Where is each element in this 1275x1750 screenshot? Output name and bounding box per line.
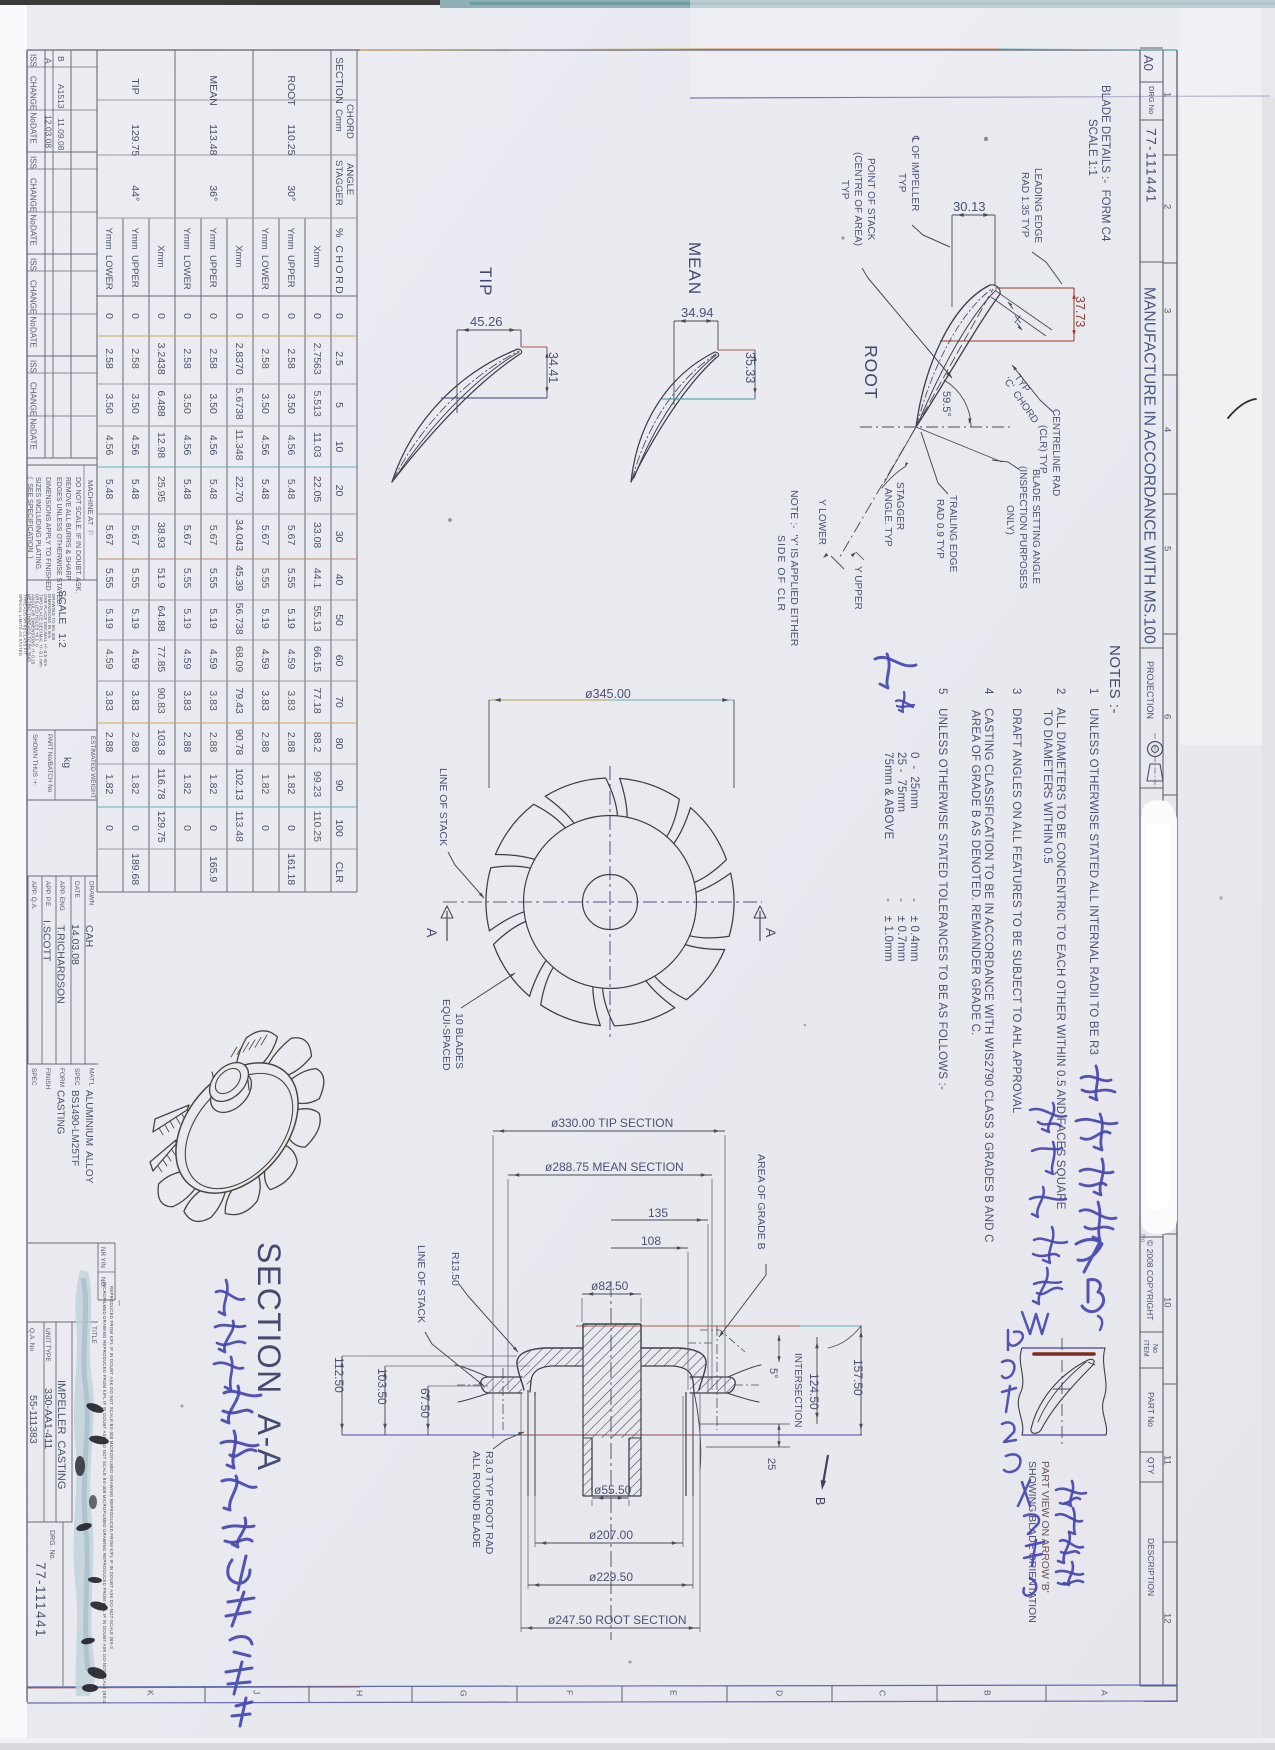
svg-text:A0: A0	[1141, 55, 1156, 71]
svg-text:4.59: 4.59	[259, 649, 271, 670]
svg-text:0: 0	[103, 825, 115, 831]
svg-text:Ymm LOWER: Ymm LOWER	[259, 228, 270, 290]
svg-text:DATE: DATE	[29, 123, 38, 144]
svg-text:MANUFACTURE IN ACCORDANCE WITH: MANUFACTURE IN ACCORDANCE WITH MS.100	[1141, 287, 1158, 644]
svg-text:2.58: 2.58	[207, 348, 219, 369]
svg-text:2.88: 2.88	[259, 732, 271, 753]
svg-text:CENTRELINE RAD: CENTRELINE RAD	[1050, 409, 1061, 496]
svg-text:CHANGE No: CHANGE No	[29, 280, 38, 327]
svg-text:0: 0	[207, 313, 219, 319]
svg-text:T.RICHARDSON: T.RICHARDSON	[55, 925, 67, 1004]
svg-text:129.75: 129.75	[129, 124, 141, 156]
svg-text:MEAN: MEAN	[685, 242, 704, 295]
svg-text:3.83: 3.83	[207, 690, 219, 711]
svg-text:ISS: ISS	[29, 360, 38, 373]
svg-text:ONLY): ONLY)	[1004, 505, 1015, 535]
svg-text:55.13: 55.13	[311, 606, 323, 632]
svg-text:0: 0	[285, 825, 297, 831]
svg-text:3.50: 3.50	[103, 393, 115, 414]
svg-text:A: A	[424, 928, 440, 938]
svg-text:14.03.08: 14.03.08	[69, 924, 81, 965]
svg-text:BS1490-LM25TF: BS1490-LM25TF	[69, 1090, 80, 1166]
svg-text:0: 0	[259, 825, 271, 831]
svg-text:TYP: TYP	[839, 180, 850, 200]
svg-text:70: 70	[333, 696, 345, 708]
svg-text:67.50: 67.50	[418, 1388, 432, 1418]
svg-text:5.55: 5.55	[207, 568, 219, 589]
svg-text:40: 40	[333, 574, 345, 586]
svg-text:SHOWN THUS :+:: SHOWN THUS :+:	[31, 734, 38, 786]
svg-text:DESCRIPTION: DESCRIPTION	[1146, 1538, 1156, 1596]
svg-text:ROOT: ROOT	[861, 345, 881, 400]
svg-text:CHANGE No: CHANGE No	[29, 178, 38, 225]
svg-text:2: 2	[1162, 204, 1173, 209]
svg-text:59.5°: 59.5°	[940, 391, 952, 417]
svg-text:Xmm: Xmm	[155, 245, 166, 267]
svg-text:45.26: 45.26	[470, 314, 503, 329]
svg-text:- ± 0.7mm: - ± 0.7mm	[895, 898, 907, 962]
svg-text:APP. ENG: APP. ENG	[58, 881, 65, 911]
svg-text:PART VIEW ON ARROW 'B': PART VIEW ON ARROW 'B'	[1039, 1461, 1051, 1593]
svg-text:45.39: 45.39	[233, 565, 245, 591]
svg-text:6.488: 6.488	[155, 391, 167, 417]
svg-text:SPEC: SPEC	[73, 1068, 80, 1086]
svg-text:NOTE :- 'Y' IS APPLIED EITHER: NOTE :- 'Y' IS APPLIED EITHER	[788, 490, 800, 647]
svg-text:UNIT TYPE: UNIT TYPE	[44, 1328, 51, 1362]
svg-text:0: 0	[103, 313, 115, 319]
svg-text:FINISH: FINISH	[44, 1068, 51, 1090]
svg-text:B: B	[813, 1497, 827, 1505]
svg-text:10: 10	[333, 441, 345, 453]
svg-text:TIP: TIP	[476, 267, 495, 296]
svg-text:35.33: 35.33	[743, 352, 757, 383]
svg-text:MICROFILMED DRAWING REPRODUCED: MICROFILMED DRAWING REPRODUCED FROM K/FL…	[102, 1282, 107, 1703]
svg-text:0: 0	[129, 825, 141, 831]
svg-text:C: C	[878, 1690, 888, 1696]
svg-text:124.50: 124.50	[807, 1373, 821, 1410]
svg-text:ø288.75 MEAN SECTION: ø288.75 MEAN SECTION	[545, 1160, 684, 1174]
svg-text:CHORD: CHORD	[344, 104, 355, 139]
svg-text:A: A	[1100, 1690, 1110, 1696]
svg-text:ALUMINIUM ALLOY: ALUMINIUM ALLOY	[83, 1090, 94, 1184]
svg-text:4.56: 4.56	[285, 435, 297, 456]
svg-text:F: F	[565, 1690, 575, 1695]
svg-text:DRAWN: DRAWN	[88, 881, 95, 906]
svg-text:© 2008 COPYRIGHT: © 2008 COPYRIGHT	[1145, 1240, 1155, 1320]
svg-text:79.43: 79.43	[233, 688, 245, 714]
svg-text:1.82: 1.82	[259, 774, 271, 795]
svg-text:12.98: 12.98	[155, 432, 167, 458]
svg-text:CLR: CLR	[333, 862, 345, 883]
svg-text:DATE: DATE	[73, 881, 80, 899]
svg-text:30.13: 30.13	[953, 199, 986, 214]
svg-text:ISS: ISS	[29, 258, 38, 271]
svg-text:0: 0	[285, 313, 297, 319]
svg-text:3.83: 3.83	[103, 690, 115, 711]
svg-text:0: 0	[181, 313, 193, 319]
svg-text:0: 0	[129, 313, 141, 319]
svg-text:EQUI-SPACED: EQUI-SPACED	[440, 999, 452, 1071]
svg-text:75mm & ABOVE: 75mm & ABOVE	[882, 752, 894, 840]
svg-text:2.58: 2.58	[181, 348, 193, 369]
svg-text:25.95: 25.95	[155, 476, 167, 502]
svg-text:DO NOT SCALE. IF IN DOUBT. ASK: DO NOT SCALE. IF IN DOUBT. ASK.	[74, 477, 81, 593]
svg-text:20: 20	[333, 485, 345, 497]
svg-text:3.50: 3.50	[129, 393, 141, 414]
svg-text:0: 0	[259, 313, 271, 319]
svg-text:4.59: 4.59	[207, 649, 219, 670]
svg-text:SPEC: SPEC	[30, 1068, 37, 1086]
svg-text:(CENTRE OF AREA): (CENTRE OF AREA)	[852, 152, 863, 246]
svg-text:90.83: 90.83	[155, 688, 167, 714]
svg-text:ø82.50: ø82.50	[591, 1279, 629, 1293]
svg-text:DRG No: DRG No	[1147, 86, 1156, 114]
svg-text:5: 5	[333, 402, 345, 408]
svg-text:2.88: 2.88	[103, 732, 115, 753]
svg-text:J: J	[252, 1690, 262, 1694]
svg-text:2.88: 2.88	[285, 732, 297, 753]
svg-text:80: 80	[333, 738, 345, 750]
svg-text:5.6738: 5.6738	[233, 388, 245, 420]
svg-text:11.09.08: 11.09.08	[56, 118, 66, 151]
svg-text:5.55: 5.55	[181, 568, 193, 589]
svg-text:2.58: 2.58	[259, 348, 271, 369]
svg-text:LINE OF STACK: LINE OF STACK	[415, 1245, 427, 1323]
svg-text:51.9: 51.9	[155, 568, 167, 589]
svg-text:1.82: 1.82	[181, 774, 193, 795]
svg-text:55-111383: 55-111383	[27, 1395, 39, 1444]
svg-text:2.88: 2.88	[129, 732, 141, 753]
svg-text:MACHINE AT ⚐: MACHINE AT ⚐	[86, 480, 95, 536]
svg-text:110.25: 110.25	[311, 811, 323, 842]
svg-text:Ymm UPPER: Ymm UPPER	[129, 228, 140, 288]
svg-text:189.68: 189.68	[129, 853, 141, 885]
svg-text:4.59: 4.59	[181, 649, 193, 670]
svg-text:BLADE DETAILS :- FORM C4: BLADE DETAILS :- FORM C4	[1099, 85, 1111, 242]
svg-text:88.2: 88.2	[311, 732, 323, 753]
svg-text:3.83: 3.83	[129, 690, 141, 711]
svg-text:77.18: 77.18	[311, 688, 323, 714]
svg-text:EDGES UNLESS OTHERWISE STATED.: EDGES UNLESS OTHERWISE STATED.	[55, 477, 62, 606]
svg-text:5.19: 5.19	[207, 608, 219, 629]
svg-text:5.48: 5.48	[285, 479, 297, 500]
svg-text:G: G	[459, 1690, 469, 1697]
svg-text:ø247.50 ROOT SECTION: ø247.50 ROOT SECTION	[548, 1613, 687, 1627]
svg-text:4.56: 4.56	[103, 435, 115, 456]
svg-text:ROOT: ROOT	[285, 75, 297, 106]
svg-text:157.50: 157.50	[851, 1359, 865, 1396]
svg-text:2.58: 2.58	[129, 348, 141, 369]
svg-text:FORM: FORM	[58, 1068, 65, 1087]
svg-text:0: 0	[233, 313, 245, 319]
svg-text:5.48: 5.48	[103, 479, 115, 500]
svg-text:165.9: 165.9	[207, 856, 219, 882]
svg-text:1.82: 1.82	[285, 774, 297, 795]
svg-text:34.043: 34.043	[233, 519, 245, 551]
svg-text:2.58: 2.58	[103, 348, 115, 369]
svg-text:4.59: 4.59	[285, 649, 297, 670]
svg-text:ALL ROUND BLADE: ALL ROUND BLADE	[470, 1451, 482, 1548]
svg-text:3.83: 3.83	[285, 690, 297, 711]
svg-text:CASTING: CASTING	[55, 1090, 66, 1135]
svg-text:113.48: 113.48	[207, 124, 219, 155]
svg-text:PART No: PART No	[1146, 1392, 1156, 1427]
svg-text:90: 90	[333, 780, 345, 792]
svg-text:5.513: 5.513	[311, 391, 323, 417]
svg-text:112.50: 112.50	[332, 1357, 346, 1393]
svg-text:3.50: 3.50	[181, 393, 193, 414]
svg-text:66.15: 66.15	[311, 646, 323, 672]
svg-text:Ymm UPPER: Ymm UPPER	[285, 228, 296, 288]
svg-text:B: B	[983, 1690, 993, 1696]
svg-text:100: 100	[333, 819, 345, 837]
svg-text:11.348: 11.348	[233, 429, 245, 460]
svg-text:2.5: 2.5	[333, 351, 345, 366]
svg-text:2.58: 2.58	[285, 348, 297, 369]
svg-text:ø207.00: ø207.00	[589, 1528, 633, 1542]
svg-text:SCALE 1:2: SCALE 1:2	[56, 590, 68, 648]
svg-text:30°: 30°	[285, 185, 297, 201]
svg-text:ISS: ISS	[29, 54, 38, 67]
svg-text:ISS: ISS	[29, 156, 38, 169]
svg-text:RAD 1.35 TYP: RAD 1.35 TYP	[1019, 172, 1030, 238]
svg-text:Y UPPER: Y UPPER	[852, 566, 863, 610]
svg-text:DATE: DATE	[29, 225, 38, 246]
svg-text:5.55: 5.55	[103, 568, 115, 589]
svg-text:BLADE SETTING ANGLE: BLADE SETTING ANGLE	[1030, 469, 1041, 584]
svg-text:11.03: 11.03	[311, 432, 323, 458]
svg-text:60: 60	[333, 655, 345, 667]
svg-text:5.67: 5.67	[181, 525, 193, 546]
svg-text:SIDE OF CLR: SIDE OF CLR	[775, 535, 787, 612]
svg-text:56.738: 56.738	[233, 603, 245, 635]
svg-text:0: 0	[207, 825, 219, 831]
svg-text:2 ALL DIAMETERS TO BE CONCE: 2 ALL DIAMETERS TO BE CONCENTRIC TO EACH…	[1054, 688, 1066, 1210]
svg-text:ø55.50: ø55.50	[594, 1483, 632, 1497]
svg-text:1 UNLESS OTHERWISE STATED A: 1 UNLESS OTHERWISE STATED ALL INTERNAL R…	[1087, 688, 1099, 1055]
svg-text:DIMENSIONS APPLY TO FINISHED: DIMENSIONS APPLY TO FINISHED	[44, 477, 51, 591]
svg-text:103.8: 103.8	[155, 729, 167, 755]
svg-text:H: H	[355, 1690, 365, 1696]
svg-text:4.59: 4.59	[129, 649, 141, 670]
svg-text:APP. Q.A.: APP. Q.A.	[30, 881, 37, 910]
svg-text:REMOVE ALL BURRS & SHARP: REMOVE ALL BURRS & SHARP	[64, 477, 71, 581]
svg-text:2.7563: 2.7563	[311, 343, 323, 375]
svg-text:TRAILING EDGE: TRAILING EDGE	[947, 495, 958, 573]
svg-text:5°: 5°	[767, 1368, 779, 1379]
svg-text:ITEM: ITEM	[1142, 1340, 1149, 1357]
svg-text:- ± 1.0mm: - ± 1.0mm	[882, 898, 894, 962]
svg-text:SECTION: SECTION	[333, 57, 345, 104]
svg-text:64.88: 64.88	[155, 606, 167, 632]
svg-text:APP. P.E: APP. P.E	[44, 881, 51, 907]
svg-text:Ymm LOWER: Ymm LOWER	[181, 228, 192, 290]
svg-text:25: 25	[765, 1458, 777, 1470]
svg-text:(CLR) TYP: (CLR) TYP	[1037, 425, 1048, 474]
svg-text:3.50: 3.50	[259, 393, 271, 414]
svg-text:0: 0	[311, 313, 323, 319]
svg-text:99.23: 99.23	[311, 771, 323, 797]
svg-text:No: No	[1151, 1344, 1158, 1353]
svg-text:10: 10	[1162, 1297, 1173, 1308]
svg-text:STAGGER: STAGGER	[333, 160, 344, 206]
svg-text:SECTION A-A: SECTION A-A	[251, 1242, 287, 1472]
svg-text:Y LOWER: Y LOWER	[816, 499, 827, 545]
svg-text:D: D	[775, 1690, 785, 1696]
svg-text:No: No	[1139, 1234, 1146, 1243]
svg-text:11: 11	[1162, 1455, 1173, 1465]
svg-text:22.70: 22.70	[233, 476, 245, 502]
svg-text:36°: 36°	[207, 185, 219, 201]
svg-text:- ± 0.4mm: - ± 0.4mm	[908, 898, 920, 962]
svg-text:102.13: 102.13	[233, 768, 245, 800]
svg-text:44°: 44°	[129, 185, 141, 201]
svg-text:5.19: 5.19	[181, 608, 193, 629]
svg-text:SPECIAL LIMITS AS STATED: SPECIAL LIMITS AS STATED	[18, 594, 23, 656]
svg-text:2.88: 2.88	[181, 732, 193, 753]
svg-text:5.55: 5.55	[259, 568, 271, 589]
svg-text:103.50: 103.50	[375, 1368, 389, 1405]
svg-text:ø345.00: ø345.00	[585, 687, 631, 701]
svg-text:2.8370: 2.8370	[233, 343, 245, 375]
svg-text:113.48: 113.48	[233, 811, 245, 842]
svg-text:108: 108	[641, 1234, 661, 1248]
svg-text:0 - 25mm: 0 - 25mm	[908, 752, 920, 809]
svg-text:161.18: 161.18	[285, 853, 297, 885]
svg-text:1.82: 1.82	[207, 774, 219, 795]
svg-text:5.19: 5.19	[129, 608, 141, 629]
svg-text:5.67: 5.67	[103, 525, 115, 546]
svg-text:3.83: 3.83	[181, 690, 193, 711]
svg-text:CHANGE No: CHANGE No	[29, 76, 38, 123]
svg-text:4.56: 4.56	[259, 435, 271, 456]
svg-text:RAD 0.9 TYP: RAD 0.9 TYP	[934, 499, 945, 559]
svg-text:CAH: CAH	[83, 925, 95, 947]
svg-text:Cmm: Cmm	[333, 109, 344, 132]
svg-text:Q.A. No: Q.A. No	[28, 1328, 35, 1352]
svg-text:5.67: 5.67	[259, 525, 271, 546]
svg-text:ø330.00 TIP SECTION: ø330.00 TIP SECTION	[551, 1116, 673, 1130]
svg-text:PART No/BATCH No: PART No/BATCH No	[46, 734, 53, 793]
svg-text:0: 0	[333, 313, 345, 319]
svg-text:NOTES :-: NOTES :-	[1106, 645, 1123, 714]
svg-text:Ymm UPPER: Ymm UPPER	[207, 228, 218, 288]
svg-text:3 DRAFT ANGLES ON ALL FEATU: 3 DRAFT ANGLES ON ALL FEATURES TO BE SUB…	[1010, 688, 1022, 1114]
svg-text:37.73: 37.73	[1073, 296, 1087, 327]
svg-text:TYP: TYP	[896, 173, 907, 193]
svg-text:TO DIAMETERS WITHIN 0.5: TO DIAMETERS WITHIN 0.5	[1041, 710, 1053, 864]
svg-text:5.48: 5.48	[207, 479, 219, 500]
svg-text:POINT OF STACK: POINT OF STACK	[865, 158, 876, 241]
svg-text:4.59: 4.59	[103, 649, 115, 670]
svg-text:Ymm LOWER: Ymm LOWER	[103, 228, 114, 290]
svg-text:E: E	[669, 1690, 679, 1696]
svg-text:A: A	[763, 928, 779, 938]
svg-text:0: 0	[155, 313, 167, 319]
svg-text:TIP: TIP	[129, 78, 141, 94]
svg-text:PROJECTION: PROJECTION	[1145, 661, 1155, 719]
svg-text:5.48: 5.48	[259, 479, 271, 500]
svg-text:77-111441: 77-111441	[33, 1562, 48, 1638]
svg-text:kg: kg	[61, 757, 73, 768]
svg-text:5.67: 5.67	[129, 525, 141, 546]
svg-text:CHANGE No: CHANGE No	[29, 382, 38, 429]
svg-text:5: 5	[1162, 546, 1173, 551]
svg-text:ANGLE. TYP: ANGLE. TYP	[882, 488, 893, 547]
svg-text:3.83: 3.83	[259, 690, 271, 711]
svg-text:DATE: DATE	[29, 327, 38, 348]
svg-text:AREA OF GRADE B: AREA OF GRADE B	[755, 1154, 767, 1250]
svg-text:R13.50: R13.50	[449, 1252, 461, 1286]
svg-text:SCALE 1:1: SCALE 1:1	[1086, 119, 1098, 176]
svg-text:A: A	[44, 58, 54, 64]
svg-text:10 BLADES: 10 BLADES	[453, 1013, 465, 1069]
svg-text:5.19: 5.19	[285, 608, 297, 629]
svg-text:3.50: 3.50	[207, 393, 219, 414]
svg-text:1.82: 1.82	[129, 774, 141, 795]
svg-text:’”‘˜: ’”‘˜	[114, 1300, 120, 1306]
svg-text:4: 4	[1162, 427, 1173, 432]
svg-text:TITLE: TITLE	[90, 1326, 97, 1344]
svg-text:R3.0 TYP ROOT RAD: R3.0 TYP ROOT RAD	[483, 1451, 495, 1555]
svg-text:I.SCOTT: I.SCOTT	[41, 920, 53, 962]
svg-text:110.25: 110.25	[285, 124, 297, 155]
svg-text:90.78: 90.78	[233, 729, 245, 755]
svg-text:QTY: QTY	[1146, 1457, 1156, 1475]
svg-text:2.88: 2.88	[207, 732, 219, 753]
svg-text:B: B	[56, 56, 66, 62]
svg-text:5.19: 5.19	[103, 608, 115, 629]
svg-text:22.05: 22.05	[311, 476, 323, 502]
svg-text:5 UNLESS OTHERWISE STATED T: 5 UNLESS OTHERWISE STATED TOLERANCES TO …	[936, 688, 948, 1090]
svg-text:38.93: 38.93	[155, 522, 167, 548]
svg-text:ESTIMATED WEIGHT: ESTIMATED WEIGHT	[89, 736, 96, 799]
svg-text:A1513: A1513	[56, 84, 66, 109]
svg-text:4.56: 4.56	[181, 435, 193, 456]
svg-text:5.55: 5.55	[129, 568, 141, 589]
svg-text:ANGLE: ANGLE	[344, 163, 355, 195]
svg-text:Xmm: Xmm	[233, 245, 244, 267]
svg-text:LINE OF STACK: LINE OF STACK	[437, 768, 449, 846]
svg-text:3.2438: 3.2438	[155, 343, 167, 375]
svg-text:SIZES INCLUDING PLATING.: SIZES INCLUDING PLATING.	[34, 477, 41, 571]
svg-text:MEAN: MEAN	[207, 75, 219, 105]
svg-text:116.78: 116.78	[155, 768, 167, 799]
svg-text:(INSPECTION PURPOSES: (INSPECTION PURPOSES	[1017, 466, 1028, 589]
svg-text:AREA OF GRADE B AS DENOTED. RE: AREA OF GRADE B AS DENOTED. REMAINDER GR…	[969, 710, 981, 1036]
svg-text:℄ OF IMPELLER: ℄ OF IMPELLER	[909, 135, 920, 211]
svg-text:NR Y/N: NR Y/N	[99, 1247, 106, 1268]
svg-text:330-AA1-411: 330-AA1-411	[42, 1388, 54, 1449]
svg-text:DRG. No.: DRG. No.	[48, 1530, 55, 1560]
svg-text:1: 1	[1162, 92, 1173, 97]
svg-text:50: 50	[333, 614, 345, 626]
svg-text:1.82: 1.82	[103, 774, 115, 795]
svg-text:25 - 75mm: 25 - 75mm	[895, 752, 907, 812]
svg-text:Xmm: Xmm	[311, 245, 322, 267]
svg-text:0: 0	[181, 825, 193, 831]
svg-text:MAT'L: MAT'L	[88, 1068, 95, 1086]
svg-text:DATE: DATE	[29, 429, 38, 450]
svg-text:129.75: 129.75	[155, 811, 167, 843]
svg-text:5.55: 5.55	[285, 568, 297, 589]
svg-text:IMPELLER CASTING: IMPELLER CASTING	[55, 1380, 67, 1489]
svg-text:( SEE SPECIFICATION ): ( SEE SPECIFICATION )	[26, 477, 33, 559]
svg-text:4.56: 4.56	[129, 435, 141, 456]
svg-text:4 CASTING CLASSIFICATION TO: 4 CASTING CLASSIFICATION TO BE IN ACCORD…	[982, 688, 994, 1243]
svg-text:44.1: 44.1	[311, 568, 323, 589]
svg-text:77.85: 77.85	[155, 646, 167, 672]
